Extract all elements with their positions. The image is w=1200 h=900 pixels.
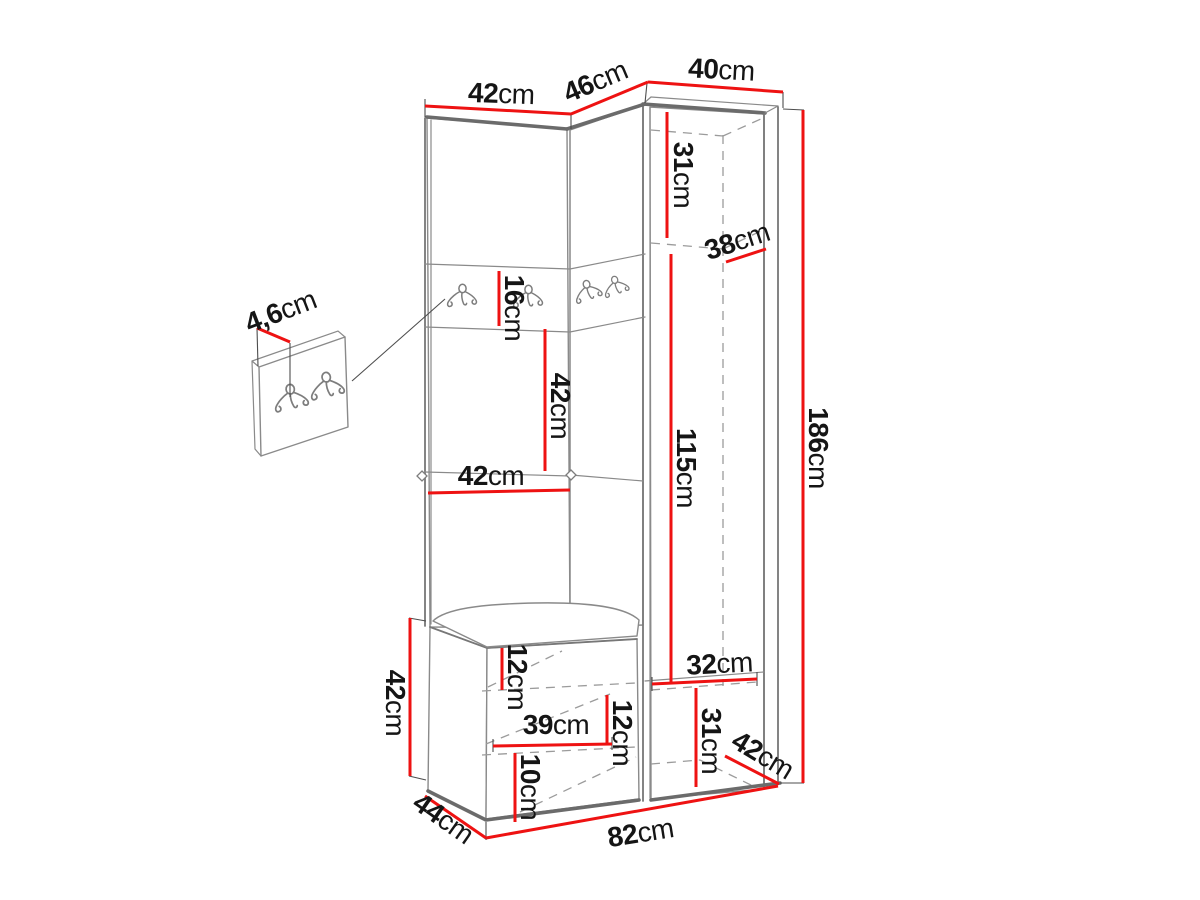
dim-label-bench-inner-width: 39cm bbox=[523, 709, 589, 740]
dim-label-top-right-width: 40cm bbox=[687, 52, 755, 86]
dim-label-bench-top-inset: 12cm bbox=[502, 644, 533, 710]
dim-line-bench-inner-width bbox=[493, 744, 612, 746]
dim-label-left-open-height: 42cm bbox=[545, 373, 576, 439]
angled-front-face bbox=[570, 105, 643, 628]
dim-label-left-shelf-width: 42cm bbox=[458, 460, 524, 491]
dim-label-total-height: 186cm bbox=[803, 407, 834, 489]
top-face-edge bbox=[765, 106, 778, 113]
dim-label-right-lower-height: 31cm bbox=[696, 708, 727, 774]
extension-line bbox=[409, 618, 426, 621]
furniture-dimension-diagram: 42cm 46cm 40cm 31cm 38cm 16cm 42cm 42cm … bbox=[0, 0, 1200, 900]
extension-line bbox=[409, 776, 426, 780]
extension-line bbox=[783, 109, 804, 110]
dim-label-right-middle-height: 115cm bbox=[671, 428, 702, 508]
dim-label-panel-thickness: 4,6cm bbox=[241, 283, 321, 338]
bench-left-face bbox=[428, 627, 487, 819]
dim-label-total-width: 82cm bbox=[605, 812, 676, 853]
dim-label-hook-panel-height: 16cm bbox=[499, 275, 530, 341]
dim-label-top-angled-width: 46cm bbox=[559, 54, 632, 109]
dim-label-bench-inner-height: 12cm bbox=[607, 700, 638, 766]
dim-label-bench-bottom-height: 10cm bbox=[515, 754, 546, 820]
dim-label-bench-height: 42cm bbox=[380, 670, 411, 736]
dim-label-right-lower-width: 32cm bbox=[685, 646, 753, 680]
diagram-canvas: 42cm 46cm 40cm 31cm 38cm 16cm 42cm 42cm … bbox=[0, 0, 1200, 900]
dim-label-right-upper-height: 31cm bbox=[668, 142, 699, 208]
dim-label-top-left-width: 42cm bbox=[468, 77, 536, 110]
